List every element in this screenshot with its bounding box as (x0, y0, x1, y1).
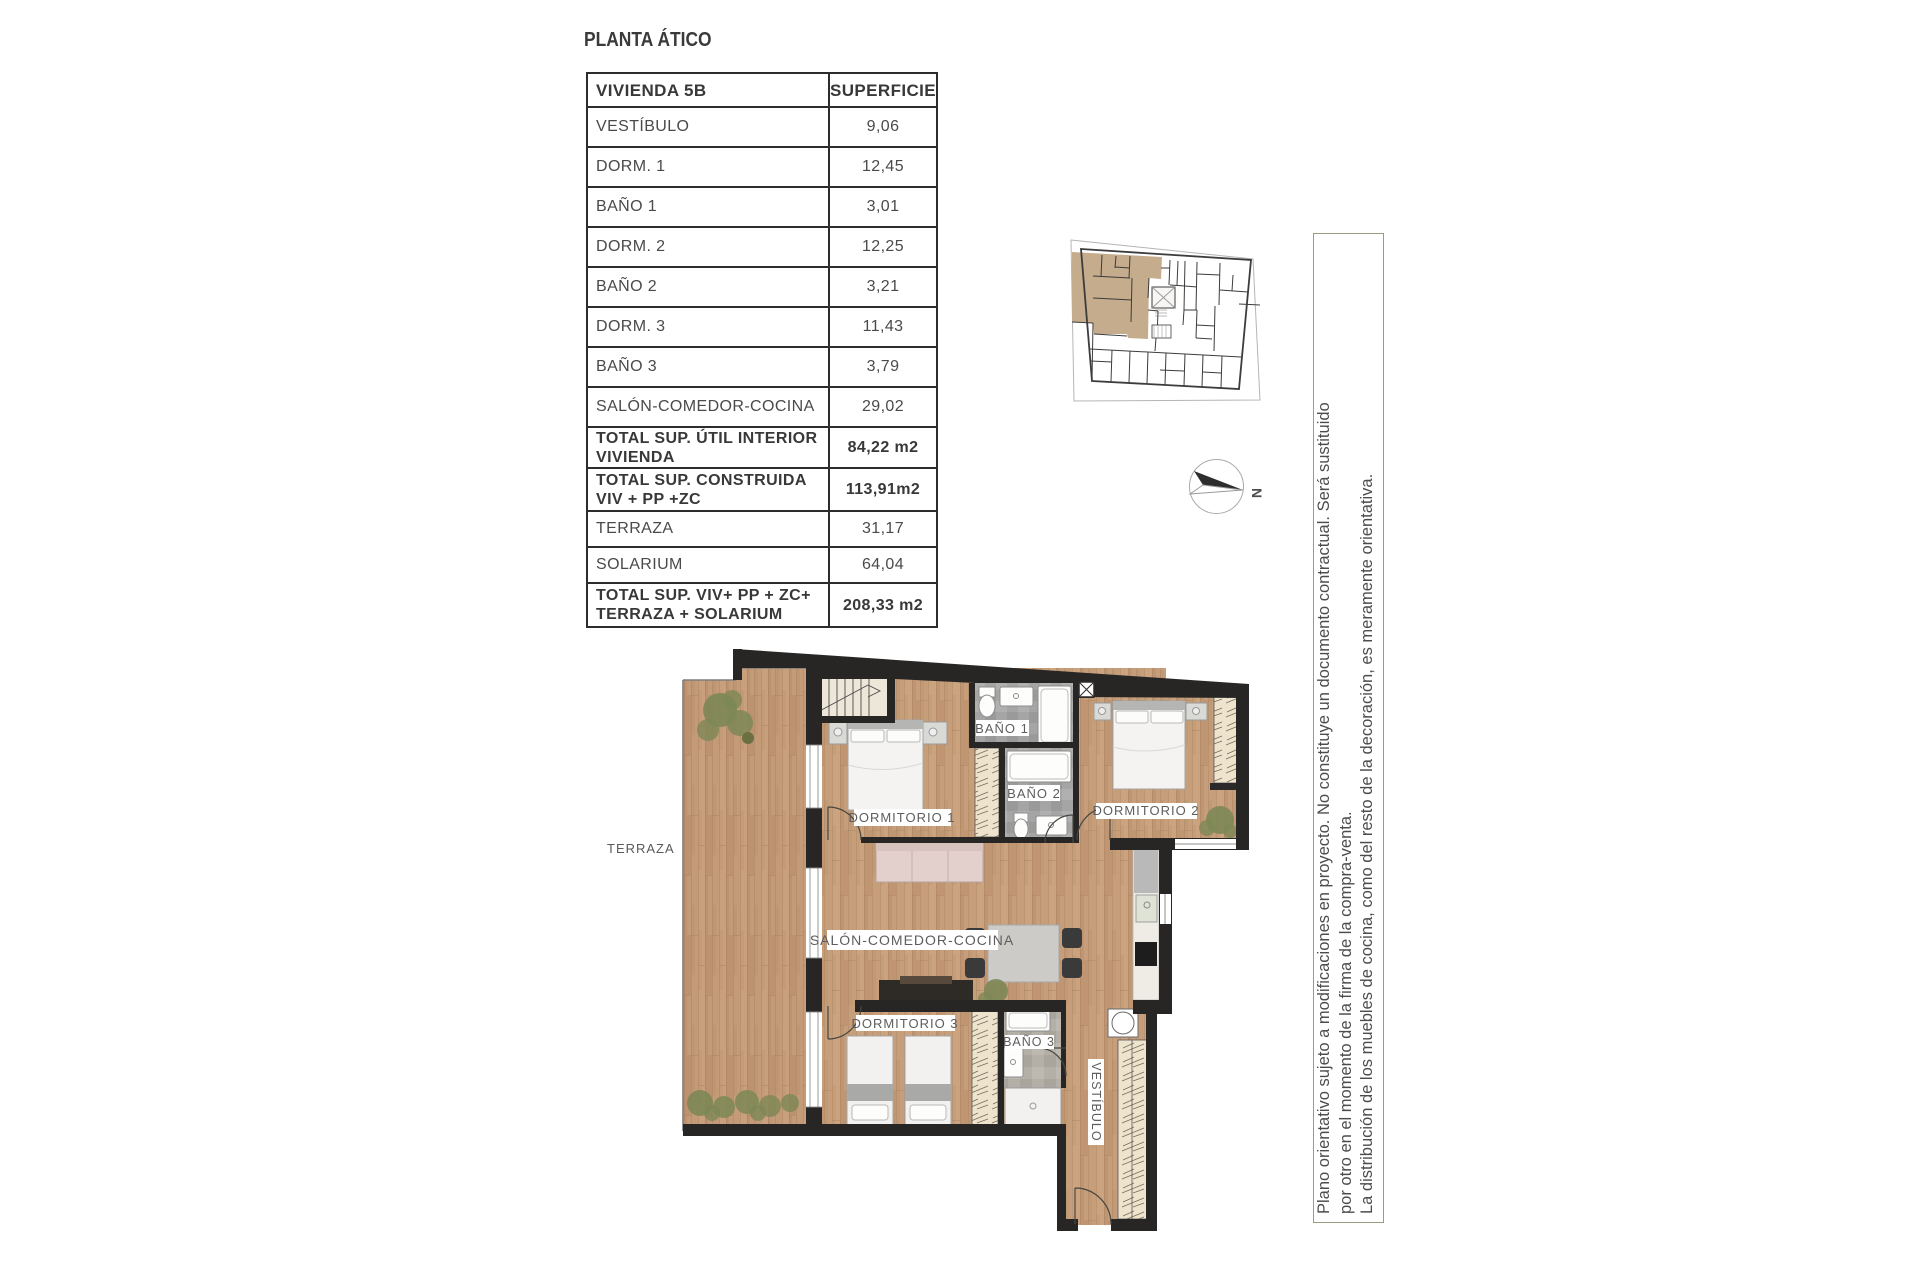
svg-text:DORMITORIO 3: DORMITORIO 3 (851, 1016, 958, 1031)
svg-text:BAÑO 3: BAÑO 3 (1003, 1035, 1055, 1049)
svg-text:VESTÍBULO: VESTÍBULO (1089, 1062, 1104, 1141)
svg-text:N: N (1249, 488, 1265, 498)
svg-text:SALÓN-COMEDOR-COCINA: SALÓN-COMEDOR-COCINA (810, 932, 1014, 948)
svg-text:DORMITORIO 2: DORMITORIO 2 (1092, 803, 1199, 818)
svg-text:BAÑO 1: BAÑO 1 (975, 721, 1029, 736)
svg-text:DORMITORIO 1: DORMITORIO 1 (848, 810, 955, 825)
svg-text:BAÑO 2: BAÑO 2 (1007, 786, 1061, 801)
